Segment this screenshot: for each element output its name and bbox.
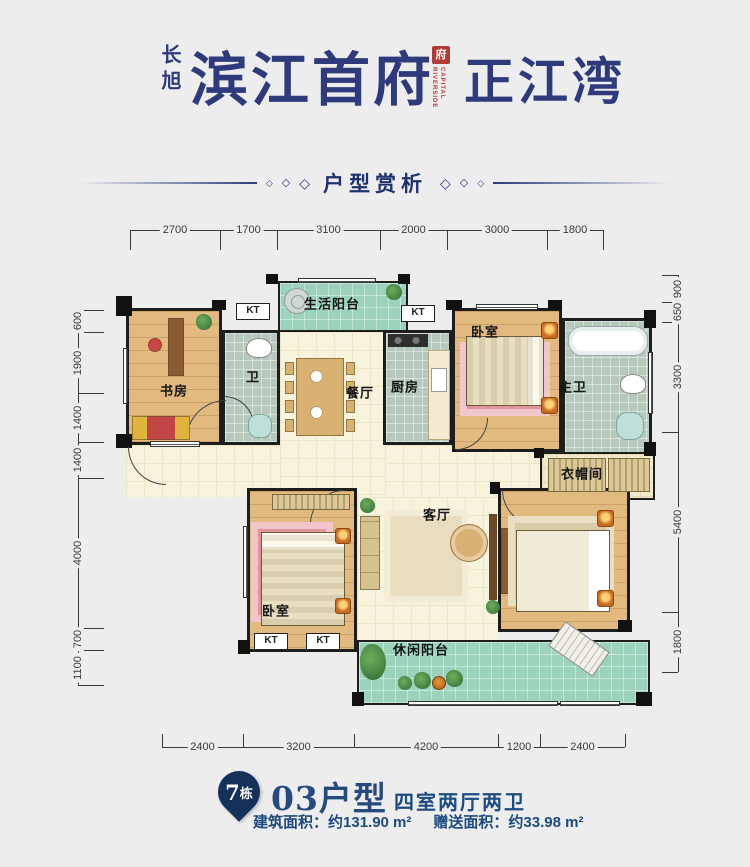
furniture-ns <box>335 528 351 544</box>
room-label: 卧室 <box>471 322 499 341</box>
ruler-tick <box>243 734 244 747</box>
furniture-toilet <box>246 338 272 358</box>
furniture-ksink <box>431 368 447 392</box>
window <box>476 304 538 310</box>
furniture-tub <box>568 326 648 356</box>
wall-pier <box>548 300 562 310</box>
dimension-label: 3100 <box>313 224 343 236</box>
furniture-plant <box>360 498 375 513</box>
dimension-label: 4200 <box>411 741 441 753</box>
furniture-hatch <box>608 458 650 492</box>
furniture-hatch <box>272 494 350 510</box>
wall-pier <box>212 300 226 310</box>
furniture-stove <box>388 334 428 347</box>
room-label: 休闲阳台 <box>393 640 449 659</box>
furniture-bed-h <box>466 336 544 406</box>
furniture-chair-s <box>285 400 294 413</box>
wall-pier <box>534 448 544 458</box>
ac-unit-label: KT <box>236 303 270 320</box>
ruler-top <box>130 230 603 231</box>
furniture-plate <box>310 370 323 383</box>
furniture-plant <box>196 314 212 330</box>
furniture-sink <box>248 414 272 438</box>
ruler-tick <box>547 230 548 250</box>
room-label: 卫 <box>246 367 260 386</box>
wall-pier <box>636 692 652 706</box>
ruler-tick <box>662 432 678 433</box>
area-info: 建筑面积：约131.90 m²赠送面积：约33.98 m² <box>253 811 583 832</box>
window <box>560 701 620 706</box>
building-badge-label: 7 栋 <box>218 771 260 813</box>
build-area-value: 约131.90 m² <box>328 814 411 831</box>
furniture-sink <box>616 412 644 440</box>
ruler-tick <box>380 230 381 250</box>
ac-unit-label: KT <box>401 305 435 322</box>
furniture-tv <box>489 514 497 600</box>
dimension-label: 1700 <box>233 224 263 236</box>
gift-area-label: 赠送面积： <box>433 814 508 831</box>
furniture-plant <box>386 284 402 300</box>
ruler-tick <box>78 442 104 443</box>
ruler-tick <box>603 230 604 250</box>
dimension-label: 5400 <box>672 507 684 537</box>
ruler-tick <box>78 685 104 686</box>
ruler-tick <box>354 734 355 747</box>
dimension-label: 3200 <box>283 741 313 753</box>
room-label: 书房 <box>160 381 188 400</box>
ruler-tick <box>447 230 448 250</box>
window <box>243 526 248 598</box>
wall-pier <box>398 274 410 284</box>
room-label: 主卫 <box>559 377 587 396</box>
dimension-label: 1200 <box>504 741 534 753</box>
furniture-chair-s <box>346 362 355 375</box>
gift-area-value: 约33.98 m² <box>508 814 583 831</box>
window <box>408 701 558 706</box>
dimension-label: 3300 <box>672 362 684 392</box>
ruler-tick <box>277 230 278 250</box>
ruler-tick <box>78 393 104 394</box>
furniture-rtable <box>450 524 488 562</box>
room-label: 餐厅 <box>346 383 374 402</box>
ruler-tick <box>162 734 163 747</box>
furniture-counter <box>428 350 450 440</box>
ruler-tick <box>662 612 678 613</box>
room-label: 衣帽间 <box>561 464 603 483</box>
wall-pier <box>490 482 500 494</box>
furniture-plant <box>414 672 431 689</box>
furniture-ns <box>335 598 351 614</box>
dimension-label: 2700 <box>160 224 190 236</box>
dimension-label: 700 <box>72 627 84 651</box>
furniture-sofa-v <box>360 516 380 590</box>
dimension-label: 4000 <box>72 538 84 568</box>
ruler-right <box>678 275 679 672</box>
build-area-label: 建筑面积： <box>253 814 328 831</box>
dimension-label: 1400 <box>72 445 84 475</box>
furniture-chair-s <box>285 381 294 394</box>
wall-pier <box>618 620 632 632</box>
ruler-tick <box>78 478 104 479</box>
ruler-tick <box>498 734 499 747</box>
dimension-label: 2400 <box>567 741 597 753</box>
dimension-label: 650 <box>672 300 684 324</box>
dimension-label: 900 <box>672 276 684 300</box>
furniture-chair-s <box>346 400 355 413</box>
ruler-tick <box>625 734 626 747</box>
furniture-plantbig <box>360 644 386 680</box>
furniture-chair <box>148 338 162 352</box>
room-label: 客厅 <box>423 505 451 524</box>
furniture-desk <box>168 318 184 376</box>
ruler-bottom <box>162 747 625 748</box>
ruler-tick <box>540 734 541 747</box>
wall-pier <box>266 274 278 284</box>
ruler-tick <box>130 230 131 250</box>
wall-pier <box>644 442 656 456</box>
furniture-chair-s <box>285 419 294 432</box>
dimension-label: 1800 <box>672 627 684 657</box>
wall-pier <box>446 300 462 310</box>
dimension-label: 2000 <box>398 224 428 236</box>
ac-unit-label: KT <box>254 633 288 650</box>
furniture-pot <box>432 676 446 690</box>
furniture-plate <box>310 406 323 419</box>
wall-pier <box>116 296 132 316</box>
dimension-label: 1800 <box>560 224 590 236</box>
dimension-label: 1100 <box>72 653 84 683</box>
floorplan-drawing: KTKTKTKT书房卫生活阳台餐厅厨房卧室主卫衣帽间客厅卧室休闲阳台270017… <box>0 0 750 867</box>
room-label: 厨房 <box>391 377 419 396</box>
dimension-label: 1400 <box>72 402 84 432</box>
furniture-toilet <box>620 374 646 394</box>
dimension-label: 2400 <box>187 741 217 753</box>
wall-pier <box>116 434 132 448</box>
ruler-tick <box>662 672 678 673</box>
furniture-ns <box>541 397 558 414</box>
furniture-plant <box>446 670 463 687</box>
ac-unit-label: KT <box>306 633 340 650</box>
ruler-tick <box>220 230 221 250</box>
room-label: 生活阳台 <box>304 294 360 313</box>
furniture-plant <box>398 676 412 690</box>
furniture-bed-h2 <box>516 530 610 612</box>
furniture-sofa <box>132 416 190 440</box>
furniture-chair-s <box>285 362 294 375</box>
window <box>123 348 128 404</box>
wall-pier <box>238 640 250 654</box>
wall-pier <box>644 310 656 328</box>
furniture-chair-s <box>346 419 355 432</box>
dimension-label: 600 <box>72 309 84 333</box>
furniture-ns <box>541 322 558 339</box>
furniture-plant <box>486 600 500 614</box>
dimension-label: 1900 <box>72 347 84 377</box>
wall-pier <box>352 692 364 706</box>
furniture-ns <box>597 510 614 527</box>
room-label: 卧室 <box>262 601 290 620</box>
furniture-table <box>296 358 344 436</box>
dimension-label: 3000 <box>482 224 512 236</box>
window <box>298 278 376 283</box>
furniture-ns <box>597 590 614 607</box>
window <box>648 352 653 414</box>
floorplan-page: 长旭 滨江首府 府 RIVERSIDE CAPITAL 正江湾 ◇ ◇ ◇ 户型… <box>0 0 750 867</box>
